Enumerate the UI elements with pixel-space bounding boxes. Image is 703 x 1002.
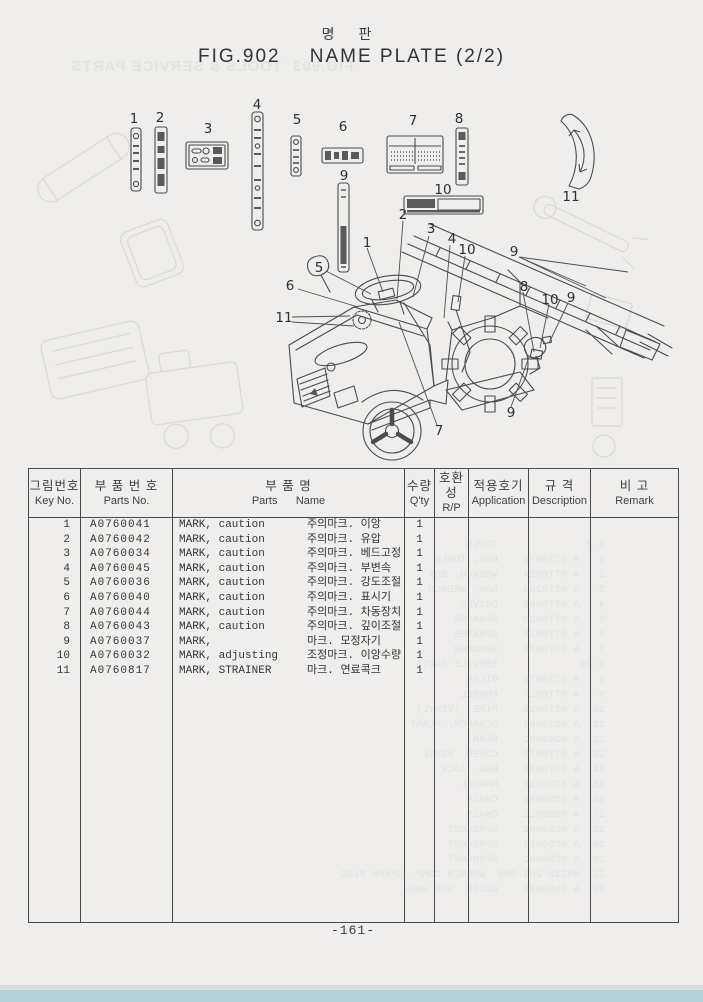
table-row: 11A0760817MARK, STRAINER마크. 연료콕크1 (29, 664, 679, 679)
cell-remark (591, 591, 679, 606)
cell-qty: 1 (405, 547, 435, 562)
callout-10: 10 (541, 292, 558, 308)
cell-name: MARK, caution주의마크. 베드고정 (173, 547, 405, 562)
cell-key: 5 (29, 576, 81, 591)
table-row: 2A0760042MARK, caution주의마크. 유압1 (29, 533, 679, 548)
empty-cell (173, 679, 405, 923)
cell-description (529, 576, 591, 591)
cell-name: MARK, caution주의마크. 깊이조절 (173, 620, 405, 635)
table-row: 6A0760040MARK, caution주의마크. 표시기1 (29, 591, 679, 606)
cell-description (529, 518, 591, 533)
cell-part-no: A0760036 (81, 576, 173, 591)
cell-rp (435, 664, 469, 679)
cell-name: MARK, caution주의마크. 표시기 (173, 591, 405, 606)
cell-part-no: A0760042 (81, 533, 173, 548)
cell-application (469, 533, 529, 548)
table-row: 1A0760041MARK, caution주의마크. 이앙1 (29, 518, 679, 533)
catalog-page: FIG.903 TOOLS & SERVICE PARTS 명 판 FIG.90… (0, 0, 703, 1002)
parts-table-body: 1A0760041MARK, caution주의마크. 이앙12A0760042… (29, 518, 679, 923)
cell-name: MARK,마크. 모정자기 (173, 635, 405, 650)
cell-application (469, 664, 529, 679)
callout-6: 6 (339, 119, 348, 135)
header-rp: 호환성R/P (435, 469, 469, 518)
cell-rp (435, 635, 469, 650)
cell-qty: 1 (405, 576, 435, 591)
cell-description (529, 562, 591, 577)
table-row: 7A0760044MARK, caution주의마크. 차동장치1 (29, 606, 679, 621)
cell-part-no: A0760041 (81, 518, 173, 533)
cell-remark (591, 518, 679, 533)
cell-rp (435, 533, 469, 548)
cell-application (469, 591, 529, 606)
callout-3: 3 (204, 121, 213, 137)
cell-description (529, 635, 591, 650)
header-key: 그림번호Key No. (29, 469, 81, 518)
header-parts-name: 부 품 명Parts Name (173, 469, 405, 518)
parts-table: 그림번호Key No. 부 품 번 호Parts No. 부 품 명Parts … (28, 468, 679, 923)
callout-3: 3 (427, 221, 436, 237)
table-row: 9A0760037MARK,마크. 모정자기1 (29, 635, 679, 650)
table-row: 8A0760043MARK, caution주의마크. 깊이조절1 (29, 620, 679, 635)
empty-cell (81, 679, 173, 923)
cell-rp (435, 620, 469, 635)
callout-layer: 123456789101121341095611810979 (0, 0, 703, 470)
cell-description (529, 620, 591, 635)
cell-description (529, 533, 591, 548)
cell-rp (435, 518, 469, 533)
callout-6: 6 (286, 278, 295, 294)
cell-part-no: A0760032 (81, 649, 173, 664)
cell-name: MARK, caution주의마크. 강도조절 (173, 576, 405, 591)
cell-qty: 1 (405, 664, 435, 679)
empty-cell (405, 679, 435, 923)
cell-name: MARK, adjusting조정마크. 이앙수량 (173, 649, 405, 664)
cell-part-no: A0760045 (81, 562, 173, 577)
cell-remark (591, 562, 679, 577)
cell-name: MARK, STRAINER마크. 연료콕크 (173, 664, 405, 679)
callout-10: 10 (458, 242, 475, 258)
callout-1: 1 (363, 235, 372, 251)
table-empty-area (29, 679, 679, 923)
cell-part-no: A0760044 (81, 606, 173, 621)
cell-key: 9 (29, 635, 81, 650)
cell-name: MARK, caution주의마크. 이앙 (173, 518, 405, 533)
cell-key: 1 (29, 518, 81, 533)
cell-remark (591, 606, 679, 621)
callout-4: 4 (448, 231, 457, 247)
cell-remark (591, 664, 679, 679)
cell-key: 4 (29, 562, 81, 577)
cell-qty: 1 (405, 620, 435, 635)
cell-name: MARK, caution주의마크. 유압 (173, 533, 405, 548)
callout-9: 9 (510, 244, 519, 260)
header-remark: 비 고Remark (591, 469, 679, 518)
cell-qty: 1 (405, 635, 435, 650)
callout-4: 4 (253, 97, 262, 113)
table-row: 3A0760034MARK, caution주의마크. 베드고정1 (29, 547, 679, 562)
callout-11: 11 (275, 310, 292, 326)
cell-part-no: A0760040 (81, 591, 173, 606)
cell-description (529, 606, 591, 621)
cell-part-no: A0760043 (81, 620, 173, 635)
callout-8: 8 (455, 111, 464, 127)
table-row: 4A0760045MARK, caution주의마크. 부변속1 (29, 562, 679, 577)
cell-qty: 1 (405, 606, 435, 621)
table-header-row: 그림번호Key No. 부 품 번 호Parts No. 부 품 명Parts … (29, 469, 679, 518)
cell-part-no: A0760034 (81, 547, 173, 562)
header-parts-no: 부 품 번 호Parts No. (81, 469, 173, 518)
table-row: 10A0760032MARK, adjusting조정마크. 이앙수량1 (29, 649, 679, 664)
empty-cell (591, 679, 679, 923)
cell-part-no: A0760037 (81, 635, 173, 650)
cell-rp (435, 562, 469, 577)
cell-qty: 1 (405, 649, 435, 664)
callout-2: 2 (399, 207, 408, 223)
callout-10: 10 (434, 182, 451, 198)
cell-remark (591, 533, 679, 548)
cell-key: 7 (29, 606, 81, 621)
cell-key: 10 (29, 649, 81, 664)
callout-7: 7 (435, 423, 444, 439)
footer-color-strip (0, 990, 703, 1002)
callout-11: 11 (562, 189, 579, 205)
empty-cell (529, 679, 591, 923)
callout-9: 9 (340, 168, 349, 184)
header-description: 규 격Description (529, 469, 591, 518)
cell-application (469, 562, 529, 577)
cell-qty: 1 (405, 591, 435, 606)
cell-application (469, 620, 529, 635)
cell-application (469, 518, 529, 533)
cell-rp (435, 649, 469, 664)
cell-name: MARK, caution주의마크. 차동장치 (173, 606, 405, 621)
callout-1: 1 (130, 111, 139, 127)
cell-rp (435, 591, 469, 606)
cell-application (469, 547, 529, 562)
callout-9: 9 (507, 405, 516, 421)
cell-key: 2 (29, 533, 81, 548)
cell-application (469, 576, 529, 591)
callout-2: 2 (156, 110, 165, 126)
cell-part-no: A0760817 (81, 664, 173, 679)
cell-qty: 1 (405, 562, 435, 577)
cell-remark (591, 635, 679, 650)
callout-5: 5 (293, 112, 302, 128)
page-number: -161- (28, 923, 678, 938)
header-qty: 수량Q'ty (405, 469, 435, 518)
callout-5: 5 (315, 260, 324, 276)
cell-key: 8 (29, 620, 81, 635)
cell-remark (591, 576, 679, 591)
cell-description (529, 547, 591, 562)
cell-rp (435, 576, 469, 591)
cell-rp (435, 547, 469, 562)
cell-application (469, 635, 529, 650)
cell-description (529, 591, 591, 606)
cell-name: MARK, caution주의마크. 부변속 (173, 562, 405, 577)
cell-application (469, 606, 529, 621)
header-application: 적용호기Application (469, 469, 529, 518)
empty-cell (469, 679, 529, 923)
empty-cell (29, 679, 81, 923)
cell-qty: 1 (405, 518, 435, 533)
empty-cell (435, 679, 469, 923)
cell-qty: 1 (405, 533, 435, 548)
cell-description (529, 649, 591, 664)
callout-9: 9 (567, 290, 576, 306)
callout-7: 7 (409, 113, 418, 129)
cell-rp (435, 606, 469, 621)
cell-description (529, 664, 591, 679)
table-row: 5A0760036MARK, caution주의마크. 강도조절1 (29, 576, 679, 591)
cell-remark (591, 620, 679, 635)
cell-key: 3 (29, 547, 81, 562)
cell-application (469, 649, 529, 664)
cell-remark (591, 547, 679, 562)
cell-key: 11 (29, 664, 81, 679)
cell-key: 6 (29, 591, 81, 606)
callout-8: 8 (520, 279, 529, 295)
cell-remark (591, 649, 679, 664)
